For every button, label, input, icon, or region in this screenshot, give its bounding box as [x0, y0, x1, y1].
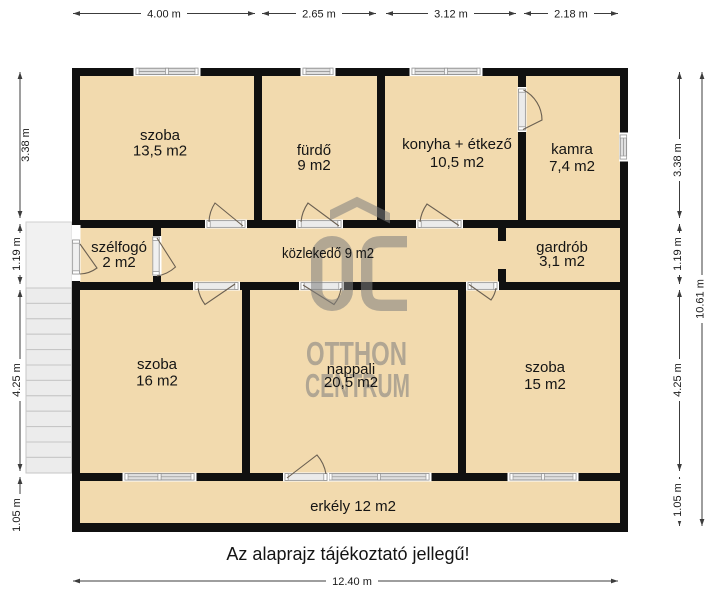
svg-text:13,5 m2: 13,5 m2 [133, 143, 187, 160]
svg-text:erkély 12 m2: erkély 12 m2 [310, 498, 396, 515]
svg-text:szoba: szoba [140, 127, 181, 144]
svg-text:2.18 m: 2.18 m [554, 9, 588, 21]
svg-text:3.38 m: 3.38 m [20, 128, 32, 162]
svg-text:20,5 m2: 20,5 m2 [324, 374, 378, 391]
svg-text:4.25 m: 4.25 m [672, 363, 684, 397]
svg-text:2.65 m: 2.65 m [302, 9, 336, 21]
svg-text:1.05 m: 1.05 m [672, 483, 684, 517]
svg-text:7,4 m2: 7,4 m2 [549, 158, 595, 175]
svg-text:szoba: szoba [525, 359, 566, 376]
svg-text:1.19 m: 1.19 m [672, 237, 684, 271]
svg-text:4.00 m: 4.00 m [147, 9, 181, 21]
svg-text:szoba: szoba [137, 356, 178, 373]
svg-text:Az alaprajz tájékoztató jelleg: Az alaprajz tájékoztató jellegű! [226, 544, 469, 564]
svg-text:közlekedő 9 m2: közlekedő 9 m2 [282, 245, 374, 262]
svg-text:1.05 m: 1.05 m [11, 498, 23, 532]
svg-text:3.38 m: 3.38 m [672, 143, 684, 177]
svg-text:12.40 m: 12.40 m [332, 576, 372, 588]
svg-text:9 m2: 9 m2 [297, 157, 330, 174]
svg-text:3.12 m: 3.12 m [434, 9, 468, 21]
svg-text:10,5 m2: 10,5 m2 [430, 154, 484, 171]
svg-text:1.19 m: 1.19 m [11, 237, 23, 271]
svg-text:4.25 m: 4.25 m [11, 363, 23, 397]
svg-text:kamra: kamra [551, 141, 593, 158]
svg-text:3,1 m2: 3,1 m2 [539, 253, 585, 270]
svg-text:15 m2: 15 m2 [524, 376, 566, 393]
svg-text:16 m2: 16 m2 [136, 373, 178, 390]
svg-text:10.61 m: 10.61 m [695, 279, 707, 319]
svg-text:konyha + étkező: konyha + étkező [402, 136, 512, 153]
svg-text:2 m2: 2 m2 [102, 254, 135, 271]
